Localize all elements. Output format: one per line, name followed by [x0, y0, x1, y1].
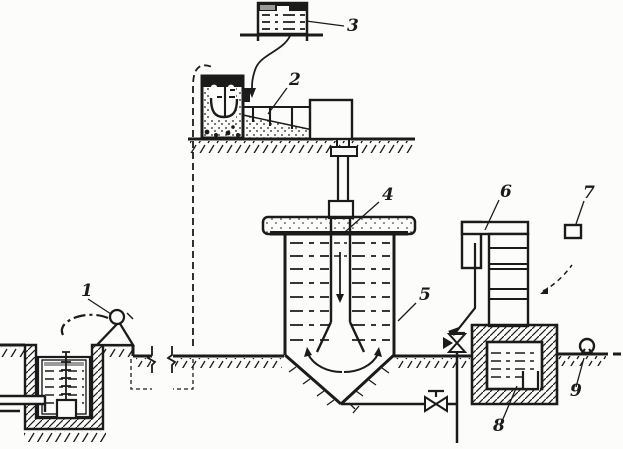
- upper-platform-ground: [188, 139, 415, 153]
- pipeline-device-icon: [580, 339, 594, 354]
- feed-chute: [243, 100, 352, 139]
- process-schematic: 1 2 3 4 5 6 7 8 9: [0, 0, 623, 449]
- label-4: 4: [382, 185, 394, 205]
- dashed-link: [543, 265, 572, 291]
- label-9: 9: [570, 381, 582, 401]
- float-lever-icon: [62, 310, 133, 345]
- mixer-tank: [263, 217, 415, 413]
- conical-bottom: [285, 355, 394, 404]
- label-7: 7: [583, 183, 595, 203]
- control-box: [540, 225, 581, 294]
- distribution-column: [448, 222, 528, 336]
- receiving-well: [0, 310, 133, 442]
- central-tube: [317, 218, 364, 352]
- circulation-arrows: [304, 347, 382, 372]
- gate-valve-icon: [425, 391, 447, 411]
- label-1: 1: [81, 281, 93, 301]
- break-mark: [168, 346, 175, 373]
- label-6: 6: [500, 182, 512, 202]
- break-mark: [148, 346, 155, 373]
- arrow-down-icon: [336, 294, 344, 303]
- label-2: 2: [288, 70, 301, 90]
- feed-line: [252, 36, 290, 89]
- mixing-box: [202, 76, 243, 138]
- receiving-box: [310, 100, 352, 139]
- label-5: 5: [419, 285, 431, 305]
- solution-tank: [240, 3, 323, 102]
- float-weight: [57, 400, 76, 418]
- feed-down-pipe: [329, 139, 357, 218]
- label-3: 3: [347, 16, 359, 36]
- label-8: 8: [492, 416, 505, 436]
